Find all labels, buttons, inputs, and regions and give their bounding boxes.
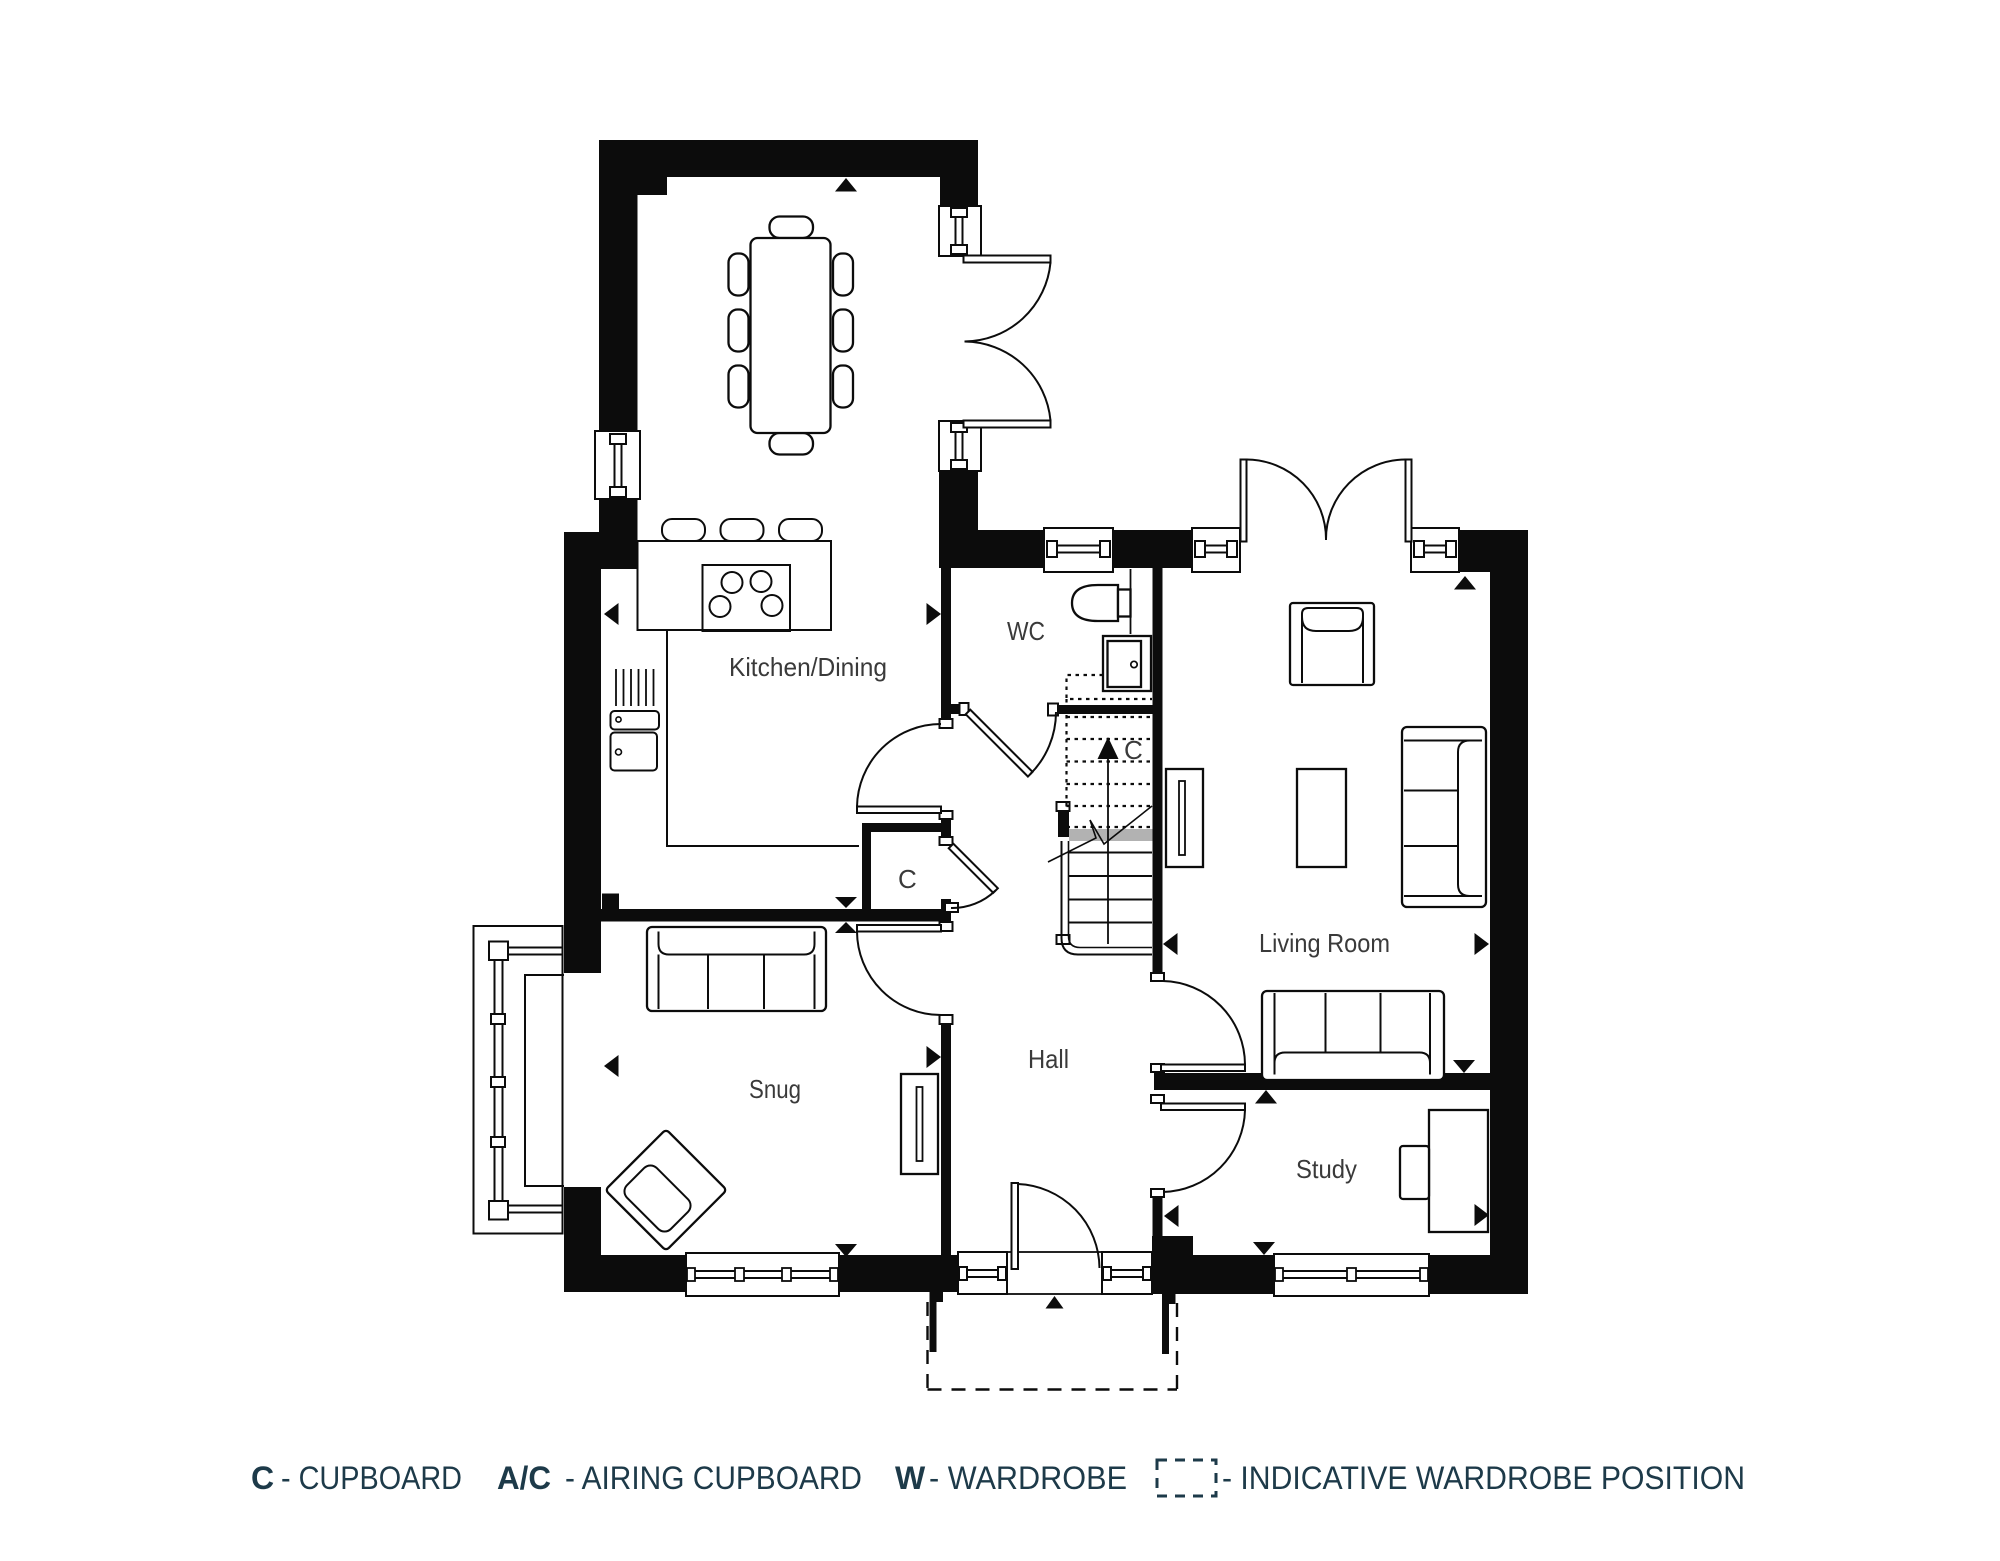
svg-text:Kitchen/Dining: Kitchen/Dining — [729, 652, 887, 682]
svg-text:- INDICATIVE WARDROBE POSITION: - INDICATIVE WARDROBE POSITION — [1222, 1460, 1745, 1496]
svg-text:C: C — [898, 864, 917, 894]
svg-text:C: C — [1124, 735, 1143, 765]
svg-text:- CUPBOARD: - CUPBOARD — [281, 1460, 462, 1496]
svg-text:Hall: Hall — [1028, 1044, 1069, 1074]
svg-text:Snug: Snug — [749, 1074, 801, 1104]
svg-text:Living Room: Living Room — [1259, 928, 1390, 958]
svg-text:C: C — [251, 1460, 274, 1496]
svg-text:W: W — [895, 1460, 926, 1496]
svg-text:Study: Study — [1296, 1154, 1357, 1184]
svg-text:- AIRING CUPBOARD: - AIRING CUPBOARD — [565, 1460, 862, 1496]
svg-text:WC: WC — [1007, 616, 1045, 646]
svg-text:- WARDROBE: - WARDROBE — [929, 1460, 1127, 1496]
svg-text:A/C: A/C — [497, 1460, 551, 1496]
